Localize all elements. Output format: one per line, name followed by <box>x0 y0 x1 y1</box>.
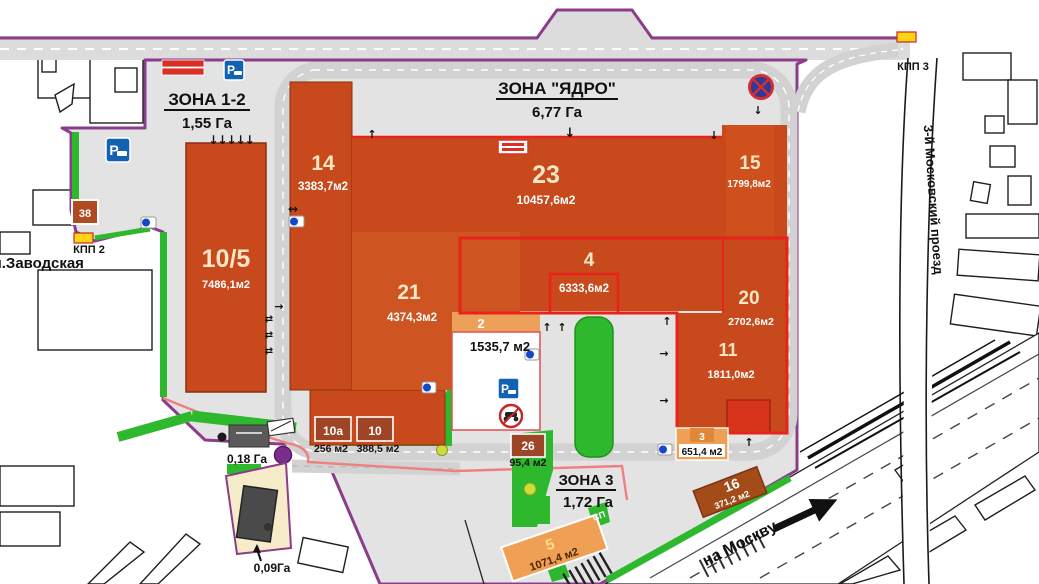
neighbor-building-outline <box>0 232 30 254</box>
building-26-number: 26 <box>521 439 535 453</box>
building-20-area: 2702,6м2 <box>728 316 774 328</box>
neighbor-building-outline <box>963 53 1011 80</box>
info-tag-icon <box>658 444 672 455</box>
gate-arrow-icon: → <box>659 347 668 360</box>
gate-arrow-icon: ↓ <box>709 129 718 142</box>
building-23-number: 23 <box>532 161 560 189</box>
building-10a-area: 256 м2 <box>314 443 348 455</box>
parking-sign-icon: P <box>224 60 244 80</box>
weighbridge-building <box>229 425 269 447</box>
building-10-5-area: 7486,1м2 <box>202 279 250 291</box>
red-white-sign-icon <box>498 140 528 154</box>
building-3-area: 651,4 м2 <box>682 447 723 458</box>
building-14 <box>290 82 352 390</box>
building-4-number: 4 <box>584 250 595 271</box>
info-tag-icon <box>141 217 156 228</box>
green-lawn-strip <box>575 317 613 457</box>
building-2-number: 2 <box>477 316 484 331</box>
building-21-number: 21 <box>397 281 421 304</box>
neighbor-building-outline <box>966 214 1039 238</box>
gate-arrow-icon: ↑ <box>744 436 753 449</box>
info-tag-icon <box>422 382 436 393</box>
neighbor-building-outline <box>33 190 72 225</box>
weighbridge-text-line <box>236 432 262 434</box>
neighbor-building-outline <box>985 116 1004 133</box>
building-26-area: 95,4 м2 <box>510 457 547 469</box>
building-20-number: 20 <box>738 288 759 309</box>
map-canvas: P P P <box>0 0 1039 584</box>
checkpoint-sign-icon <box>897 32 916 42</box>
gate-arrow-icon: ↑ <box>557 321 566 334</box>
neighbor-building-outline <box>957 249 1039 281</box>
gate-arrow-icon: ⇄ <box>265 330 273 341</box>
building-2-area: 1535,7 м2 <box>470 339 530 354</box>
gate-arrow-icon: ↔ <box>288 202 298 216</box>
neighbor-building-outline <box>38 270 152 350</box>
gate-arrow-icon: ↓ <box>565 126 576 141</box>
zone-3-area: 1,72 Га <box>563 494 614 511</box>
kpp3-label: КПП 3 <box>897 61 929 73</box>
building-23-area: 10457,6м2 <box>517 193 576 207</box>
street-zavodskaya-label: ул.Заводская <box>0 255 84 272</box>
building-38-number: 38 <box>79 208 91 220</box>
gate-arrows-icon: ↓↓↓↓↓ <box>208 133 253 147</box>
gate-arrow-icon: ⇄ <box>265 346 273 357</box>
black-dot <box>218 433 227 442</box>
neighbor-building-outline <box>115 68 137 92</box>
checkpoint-sign-icon <box>74 233 93 243</box>
site-plan-map: P P P <box>0 0 1039 584</box>
neighbor-building-outline <box>0 466 74 506</box>
building-11-area: 1811,0м2 <box>707 369 754 381</box>
parking-sign-icon: P <box>106 138 130 162</box>
black-dot <box>264 523 272 531</box>
lamp-dot <box>437 445 448 456</box>
zone-1-2-area: 1,55 Га <box>182 115 233 132</box>
building-14-number: 14 <box>311 152 335 175</box>
building-10a-number: 10а <box>323 424 343 438</box>
neighbor-building-outline <box>1008 80 1037 124</box>
neighbor-building-outline <box>990 146 1015 167</box>
lamp-dot <box>524 483 536 495</box>
no-motorcycles-sign-icon <box>500 405 522 427</box>
building-10-number: 10 <box>368 424 382 438</box>
no-stopping-sign-icon <box>750 76 773 99</box>
green-strip <box>160 232 167 397</box>
svg-text:P: P <box>227 63 235 77</box>
building-3-number: 3 <box>699 432 705 443</box>
info-tag-icon <box>289 216 304 227</box>
parcel-009-building <box>237 486 278 542</box>
parking-sign-icon: P <box>498 378 519 399</box>
svg-text:P: P <box>501 382 509 396</box>
neighbor-building-outline <box>42 58 56 72</box>
plot-018-label: 0,18 Га <box>227 452 267 466</box>
building-10-area: 388,5 м2 <box>357 443 400 455</box>
zone-core-title: ЗОНА "ЯДРО" <box>498 79 616 98</box>
neighbor-building-outline <box>0 512 60 546</box>
neighbor-building-outline <box>1008 176 1031 205</box>
zone-1-2-title: ЗОНА 1-2 <box>168 90 246 109</box>
zone-3-title: ЗОНА 3 <box>558 472 613 489</box>
building-11-red-roof <box>727 400 770 433</box>
building-11-number: 11 <box>718 340 737 360</box>
building-4-area: 6333,6м2 <box>559 283 609 295</box>
gate-arrow-icon: ↓ <box>753 104 762 117</box>
gate-arrow-icon: ↑ <box>542 321 551 334</box>
building-10-5-number: 10/5 <box>202 245 251 273</box>
neighbor-building-outline <box>970 182 990 204</box>
building-15-number: 15 <box>739 153 761 174</box>
gate-arrow-icon: → <box>659 394 668 407</box>
building-14-area: 3383,7м2 <box>298 181 348 193</box>
building-2-band <box>452 312 540 332</box>
zone-core-area: 6,77 Га <box>532 104 583 121</box>
green-lawn <box>518 496 550 524</box>
gate-arrow-icon: ⇄ <box>265 314 273 325</box>
gate-arrow-icon: → <box>274 300 283 313</box>
gate-arrow-icon: ↑ <box>367 128 376 141</box>
gate-arrow-icon: ↑ <box>662 315 671 328</box>
plot-009-label: 0,09Га <box>254 561 291 575</box>
building-21-area: 4374,3м2 <box>387 312 437 324</box>
building-15-area: 1799,8м2 <box>727 179 771 190</box>
purple-dot <box>275 447 292 464</box>
